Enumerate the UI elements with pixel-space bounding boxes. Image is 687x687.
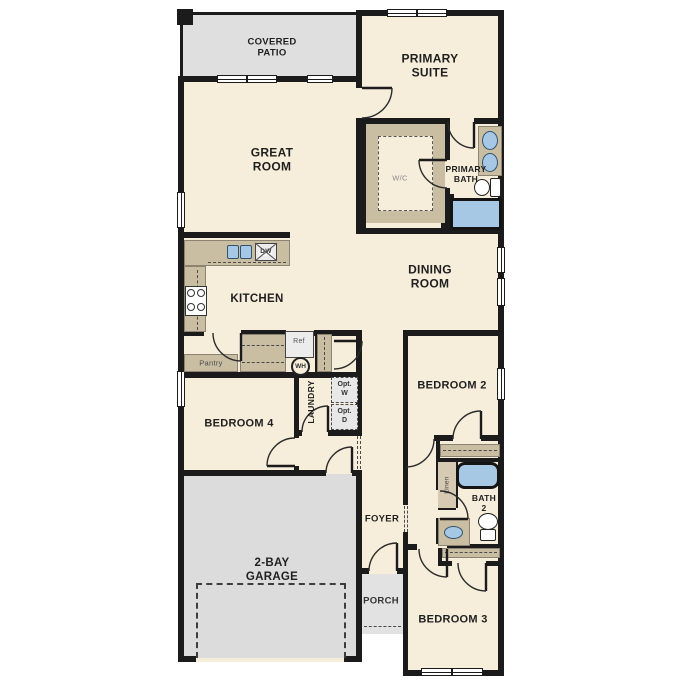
optional-washer-label: Opt. W (338, 381, 352, 399)
bath2-sink-icon (444, 526, 463, 539)
window (421, 668, 452, 676)
wall-segment (447, 10, 504, 16)
stove-burner-icon (187, 289, 195, 297)
window (177, 192, 185, 228)
closet-rod-dashed (445, 552, 497, 553)
opening-dashed (360, 436, 361, 469)
stove-burner-icon (187, 303, 195, 311)
wall-segment (182, 470, 326, 476)
patio-wall-top (180, 12, 358, 15)
wall-segment (483, 670, 504, 676)
garage-label: 2-BAY GARAGE (246, 557, 298, 585)
water-heater-label: WH (295, 363, 306, 370)
floor-plan: DW Ref WH Opt. W Opt. D Linen (0, 0, 687, 687)
kitchen-label: KITCHEN (230, 293, 283, 307)
wall-segment (403, 330, 504, 336)
window (307, 75, 333, 83)
garage-bay-dashed (196, 583, 346, 658)
wall-segment (356, 574, 362, 660)
exterior-cutout-below-garage (178, 662, 362, 687)
bath2-toilet-icon (478, 513, 498, 530)
wall-segment (445, 118, 450, 160)
wall-segment (498, 306, 504, 368)
bath2-tub-icon (456, 462, 500, 489)
wall-segment (178, 470, 184, 662)
wall-segment (178, 407, 184, 470)
wall-segment (182, 232, 290, 238)
porch-edge-dashed (364, 626, 401, 627)
bedroom2-label: BEDROOM 2 (417, 379, 486, 392)
wall-segment (294, 466, 299, 476)
wc-label: W/C (392, 174, 407, 183)
primary-suite-label: PRIMARY SUITE (402, 52, 459, 81)
window (387, 9, 417, 17)
window (247, 75, 277, 83)
opening-dashed (404, 506, 405, 532)
wall-segment (403, 532, 408, 676)
laundry-label: LAUNDRY (306, 380, 316, 423)
bedroom3-label: BEDROOM 3 (418, 613, 487, 626)
dining-room-label: DINING ROOM (408, 263, 452, 292)
closet-rod-dashed (443, 450, 497, 451)
wall-segment (356, 470, 362, 568)
kitchen-sink-icon (240, 245, 252, 259)
porch-label: PORCH (363, 595, 399, 606)
water-heater-icon: WH (291, 357, 310, 376)
covered-patio-label: COVERED PATIO (247, 37, 296, 60)
exterior-cutout-below-porch (362, 634, 403, 676)
wall-segment (498, 400, 504, 670)
linen-label: Linen (444, 476, 451, 493)
opening-dashed (407, 506, 408, 532)
window (217, 75, 247, 83)
primary-toilet-icon (490, 178, 501, 197)
primary-bath-label: PRIMARY BATH (446, 164, 487, 184)
optional-dryer-box: Opt. D (331, 404, 358, 430)
kitchen-sink-icon (227, 245, 239, 259)
stove-burner-icon (197, 289, 205, 297)
window (497, 368, 505, 400)
primary-tub-icon (450, 198, 502, 230)
pantry-shelf-dashed (242, 362, 284, 363)
optional-dryer-label: Opt. D (338, 408, 352, 426)
pantry-shelf-dashed (242, 345, 284, 346)
optional-washer-box: Opt. W (331, 377, 358, 403)
wall-segment (333, 76, 358, 82)
foyer-label: FOYER (365, 513, 399, 524)
coat-closet-rod-dashed (324, 337, 325, 370)
wall-segment (182, 76, 217, 82)
bedroom4-label: BEDROOM 4 (204, 417, 273, 430)
bath2-toilet-icon (480, 529, 496, 541)
wall-segment (277, 76, 307, 82)
stove-burner-icon (197, 303, 205, 311)
window (177, 371, 185, 407)
pantry-label: Pantry (199, 359, 222, 368)
dishwasher-label: DW (259, 248, 272, 256)
wall-segment (178, 76, 184, 192)
window (452, 668, 483, 676)
primary-sink-icon (482, 131, 498, 150)
patio-post (177, 9, 193, 25)
pantry-shelves (240, 334, 286, 372)
wall-segment (403, 330, 408, 505)
window (497, 278, 505, 306)
window (497, 247, 505, 273)
bedroom3-closet-shelf (442, 548, 500, 558)
window (417, 9, 447, 17)
counter-dashed-edge (208, 262, 286, 263)
wall-segment (294, 378, 299, 438)
wall-segment (356, 10, 362, 88)
refrigerator-label: Ref (293, 338, 305, 346)
opening-dashed (357, 436, 358, 469)
bath2-label: BATH 2 (472, 493, 496, 513)
great-room-label: GREAT ROOM (251, 146, 294, 175)
